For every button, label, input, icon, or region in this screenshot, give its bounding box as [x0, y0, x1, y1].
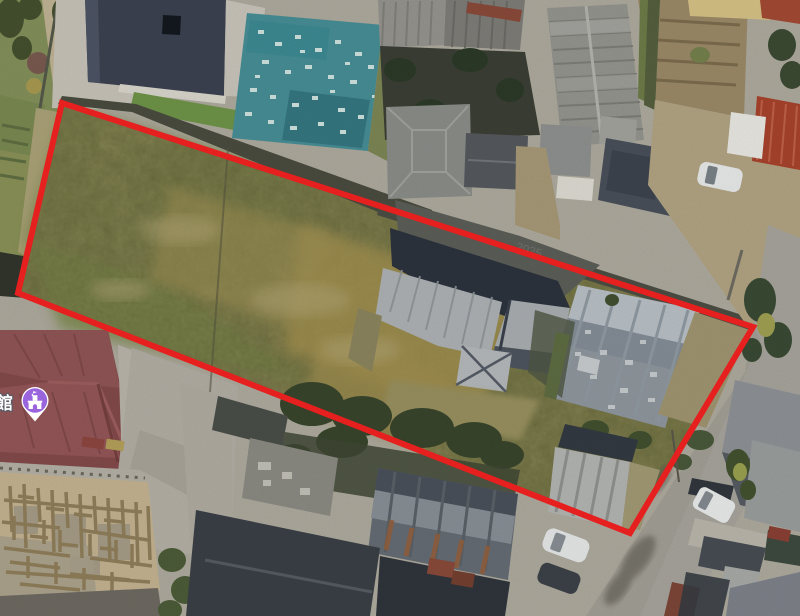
svg-text:館: 館	[0, 393, 13, 413]
